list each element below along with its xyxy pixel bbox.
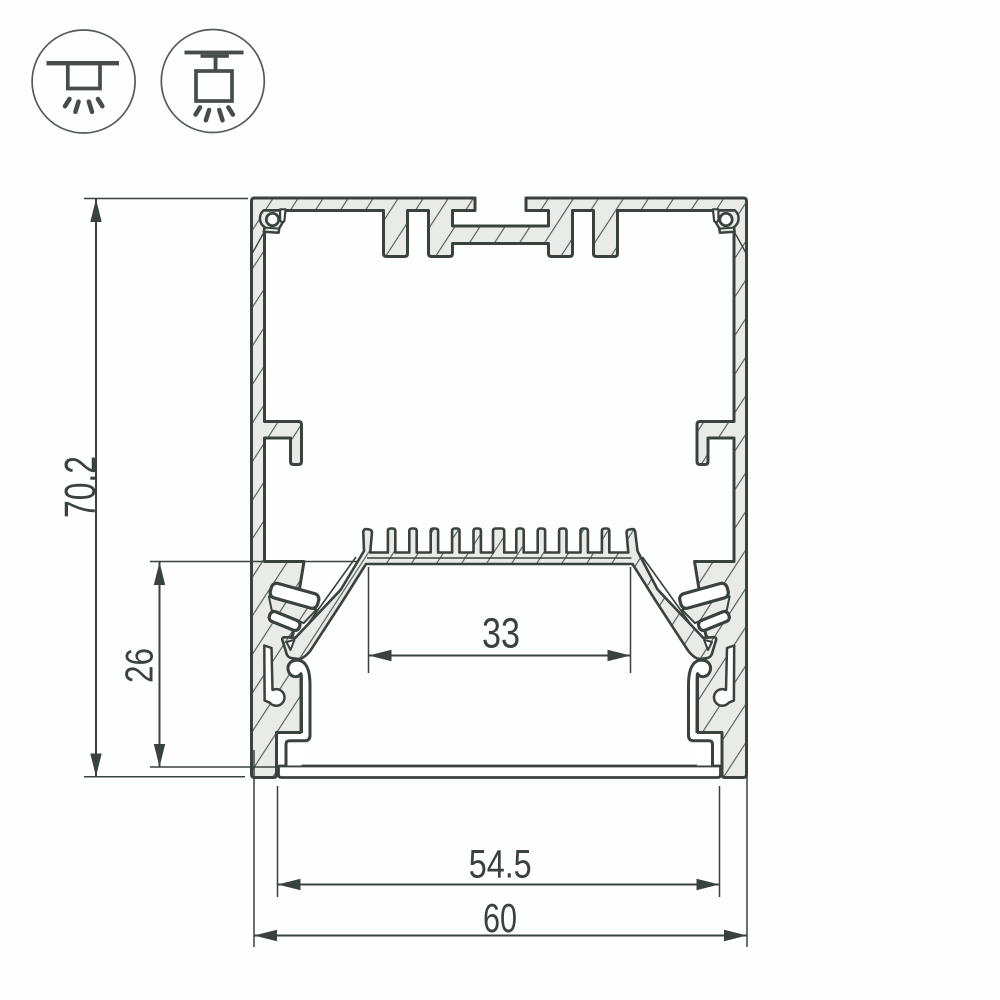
svg-text:54.5: 54.5 [469,843,532,887]
svg-text:60: 60 [483,895,517,941]
svg-text:33: 33 [482,611,520,658]
svg-text:70.2: 70.2 [56,456,105,518]
svg-text:26: 26 [119,648,162,683]
